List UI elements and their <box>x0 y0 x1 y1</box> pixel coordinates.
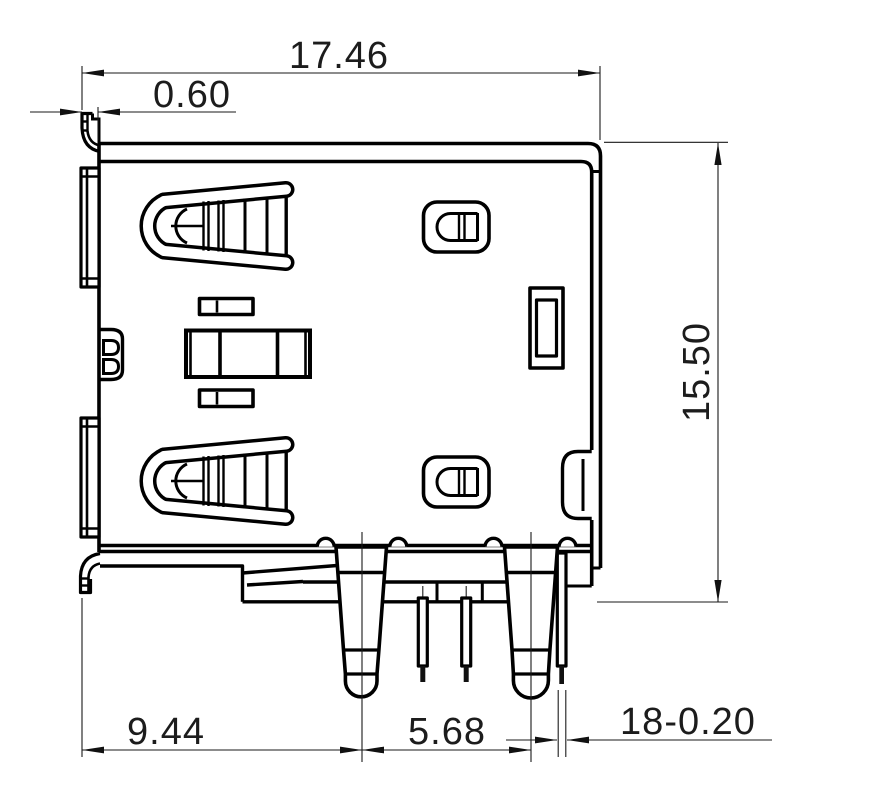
dim-label-width-total: 17.46 <box>289 35 389 77</box>
dim-label-pin-note: 18-0.20 <box>620 701 756 743</box>
dimension-height-total: 15.50 <box>597 142 728 602</box>
dim-label-edge-to-first-leg: 9.44 <box>127 711 205 753</box>
top-left-hook <box>82 114 100 152</box>
left-mount-tab-lower <box>81 418 99 537</box>
center-slot-bar <box>530 288 563 368</box>
dimension-lip-thickness: 0.60 <box>30 74 236 140</box>
left-mount-tab-upper <box>81 168 99 287</box>
connector-body-outline <box>99 144 601 587</box>
contact-clamp-lower <box>424 457 490 507</box>
crimp-wing-upper <box>148 190 286 263</box>
board-lock-peg-left <box>336 547 387 697</box>
center-contact-block <box>186 299 310 407</box>
drawing-sheet: 17.46 0.60 15.50 9.44 5.68 <box>0 0 869 785</box>
bottom-left-hook <box>81 554 101 593</box>
connector-engineering-drawing: 17.46 0.60 15.50 9.44 5.68 <box>0 0 869 785</box>
right-wall-spring-bump <box>563 452 592 519</box>
contact-clamp-upper <box>424 202 490 252</box>
base-rail-and-bracket <box>100 566 553 602</box>
dim-label-lip-thickness: 0.60 <box>153 74 231 116</box>
crimp-wing-lower <box>148 445 286 518</box>
dimension-pin-note: 18-0.20 <box>506 690 772 757</box>
left-latch-window <box>99 330 123 380</box>
dim-label-leg-spacing: 5.68 <box>408 711 486 753</box>
dimension-leg-spacing: 5.68 <box>362 711 531 753</box>
dimension-edge-to-first-leg: 9.44 <box>82 598 362 757</box>
dim-label-height-total: 15.50 <box>676 322 718 422</box>
